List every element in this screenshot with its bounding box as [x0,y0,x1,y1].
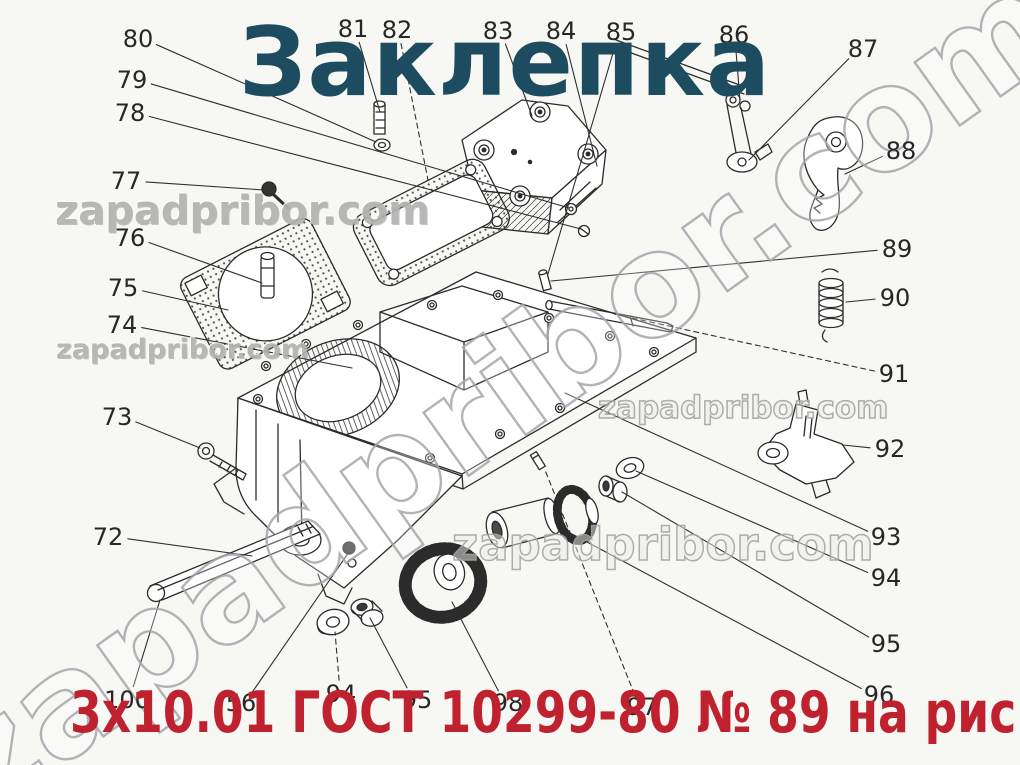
part-pin-76 [261,253,274,299]
leader-line-94 [636,471,868,572]
part-bushing-95-right [599,476,627,502]
part-bracket-92 [758,390,854,498]
leader-line-90 [846,299,875,302]
leader-line-95 [370,618,407,688]
page-title: Заклепка [239,14,771,114]
part-washer-94-right [614,454,647,482]
leader-line-92 [843,445,870,448]
leader-line-96 [572,534,861,688]
part-screw-77 [262,182,288,208]
leader-line-73 [136,422,200,448]
leader-line-98 [452,602,498,691]
leader-line-77 [146,182,264,190]
caption-text: 3х10.01 ГОСТ 10299-80 № 89 на рис. [70,680,1020,746]
leader-line-94 [335,632,339,680]
part-bushing-95-bottom [350,597,385,628]
part-spring-90 [819,269,843,342]
part-nut-80 [374,139,390,151]
leader-line-95 [622,492,869,637]
figure-canvas: zapadpribor.com zapadpribor.comzapadprib… [0,0,1020,765]
